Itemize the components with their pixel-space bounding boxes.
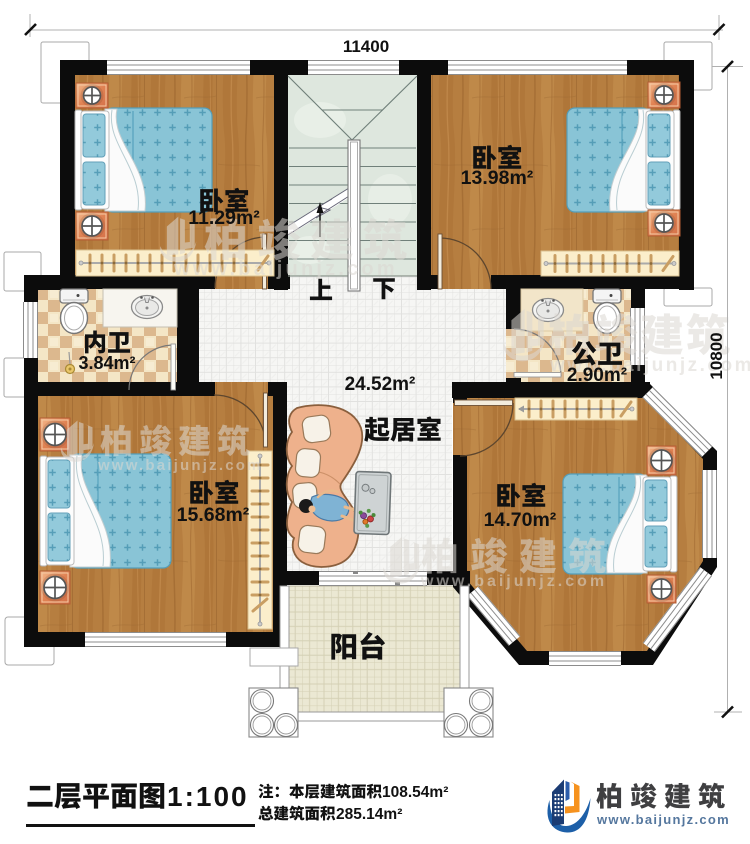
svg-text:13.98m²: 13.98m² [461,167,534,189]
svg-text:1:100: 1:100 [167,781,249,812]
svg-text:www.baijunjz.com: www.baijunjz.com [173,258,398,280]
svg-text:11.29m²: 11.29m² [188,207,260,229]
svg-text:www.baijunjz.com: www.baijunjz.com [596,812,730,827]
svg-text:24.52m²: 24.52m² [345,374,416,395]
svg-text:www.baijunjz.com: www.baijunjz.com [420,573,607,590]
svg-text:10800: 10800 [707,332,726,379]
svg-text:15.68m²: 15.68m² [177,504,250,526]
svg-text:11400: 11400 [343,37,389,56]
svg-text:www.baijunjz.com: www.baijunjz.com [97,457,263,474]
svg-text:2.90m²: 2.90m² [567,365,627,386]
svg-text:3.84m²: 3.84m² [78,353,135,373]
svg-text:285.14m²: 285.14m² [336,806,402,823]
svg-text:14.70m²: 14.70m² [484,509,557,531]
svg-text:108.54m²: 108.54m² [382,784,448,801]
